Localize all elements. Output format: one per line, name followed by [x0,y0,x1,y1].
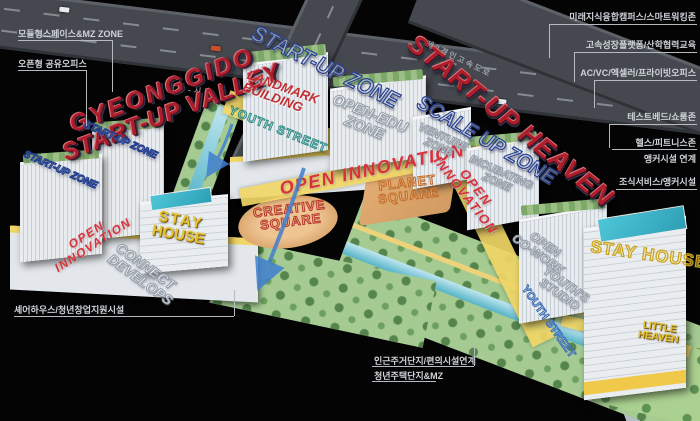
leader-line [18,70,86,71]
leader-line [616,189,697,190]
leader-line [234,290,235,316]
callout-right-5b: 앵커시설 연계 [644,152,696,165]
leader-line [609,124,610,148]
leader-line [574,52,575,82]
car [210,45,221,51]
callout-right-3: AC/VC/엑셀러/프라이빗오피스 [580,66,696,79]
callout-right-1: 미래지식융합캠퍼스/스마트워킹존 [569,10,696,23]
leader-line [474,346,475,366]
masterplan-scene: GYEONGGIDO START-UP VALLEY START-UP HEAV… [0,0,700,421]
leader-line [594,80,697,81]
callout-left-1: 모듈형스페이스&MZ ZONE [18,27,123,40]
callout-right-6: 조식서비스/앵커시설 [619,175,696,188]
leader-line [112,40,113,92]
leader-line [86,70,87,126]
callout-right-2: 고속성장플랫폼/산학협력교육 [586,38,696,51]
leader-line [609,124,697,125]
leader-line [594,80,595,108]
callout-bottom-left: 셰어하우스/청년창업지원시설 [14,303,124,316]
callout-right-4: 테스트베드/쇼룸존 [627,110,696,123]
leader-line [549,24,697,25]
leader-line [574,52,697,53]
leader-line [18,40,113,41]
leader-line [14,316,234,317]
leader-line [549,24,550,58]
car [59,7,70,13]
leader-line [372,381,436,382]
callout-left-2: 오픈형 공유오피스 [18,57,87,70]
callout-right-5a: 헬스/피트니스존 [636,136,696,149]
leader-line [612,149,697,150]
leader-line [372,366,474,367]
